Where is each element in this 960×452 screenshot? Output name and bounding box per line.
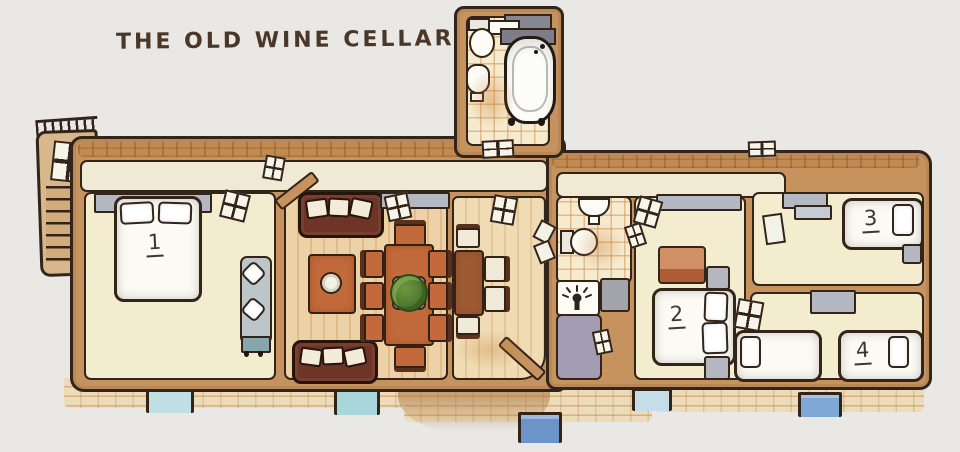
dining-chair [394, 346, 426, 368]
top-wall-brick [552, 155, 920, 168]
shower-head-icon [558, 282, 596, 312]
cellar-window [518, 412, 562, 443]
sofa-cushion [299, 347, 323, 368]
shower-icon [556, 280, 600, 316]
door-icon [762, 213, 786, 245]
tub-foot [508, 118, 515, 126]
door-icon [490, 194, 518, 226]
toilet-icon [469, 28, 495, 58]
dining-chair [428, 314, 448, 342]
cellar-window [798, 392, 842, 417]
sink-icon [466, 64, 490, 94]
kitchen-chair [456, 228, 480, 248]
counter [600, 278, 630, 312]
dining-chair [364, 314, 384, 342]
kitchen-chair [484, 256, 506, 282]
dining-chair [428, 282, 448, 310]
dresser [658, 246, 706, 284]
tub-foot [538, 118, 545, 126]
nightstand [704, 356, 730, 380]
pillow [158, 201, 193, 224]
kitchen-table [454, 250, 484, 316]
pillow [888, 336, 909, 368]
dining-chair [364, 282, 384, 310]
pillow [119, 201, 154, 225]
window-icon [810, 290, 856, 314]
dining-chair [428, 250, 448, 278]
sofa-cushion [328, 197, 351, 217]
nightstand [706, 266, 730, 290]
room-label-1: 1 [146, 230, 163, 257]
kitchen-chair [484, 286, 506, 312]
bathtub-inner-rim [512, 46, 548, 112]
bowl [320, 272, 342, 294]
bathtub-icon [504, 36, 556, 124]
window-icon [794, 205, 832, 220]
cellar-window [334, 388, 380, 415]
bed-single [838, 330, 924, 382]
pillow [701, 322, 728, 355]
cellar-window [632, 388, 672, 411]
furniture-foot [244, 351, 249, 357]
nightstand [902, 244, 922, 264]
tap-icon [540, 44, 545, 49]
sofa-cushion [322, 346, 345, 365]
dining-chair [364, 250, 384, 278]
pillow [703, 292, 728, 323]
sink-base [588, 215, 600, 225]
sink-base [470, 92, 484, 102]
window-icon [656, 194, 742, 211]
door-icon [482, 139, 515, 159]
floor-plan-canvas: 1 [0, 0, 960, 452]
door-icon [734, 298, 765, 332]
room-label-2: 2 [668, 302, 685, 329]
tap-icon [534, 50, 538, 54]
room-label-4: 4 [854, 338, 871, 365]
room-label-3: 3 [862, 206, 879, 233]
plan-title: THE OLD WINE CELLAR [116, 26, 455, 55]
pillow [740, 336, 761, 368]
dining-chair [394, 224, 426, 246]
plant-icon [390, 274, 428, 312]
pillow [892, 204, 914, 236]
furniture-foot [258, 351, 263, 357]
toilet-icon [570, 228, 598, 256]
kitchen-chair [456, 316, 480, 335]
door-icon [262, 154, 286, 181]
sofa-cushion [305, 198, 329, 220]
vent-icon [748, 141, 777, 158]
door-icon [384, 192, 413, 222]
